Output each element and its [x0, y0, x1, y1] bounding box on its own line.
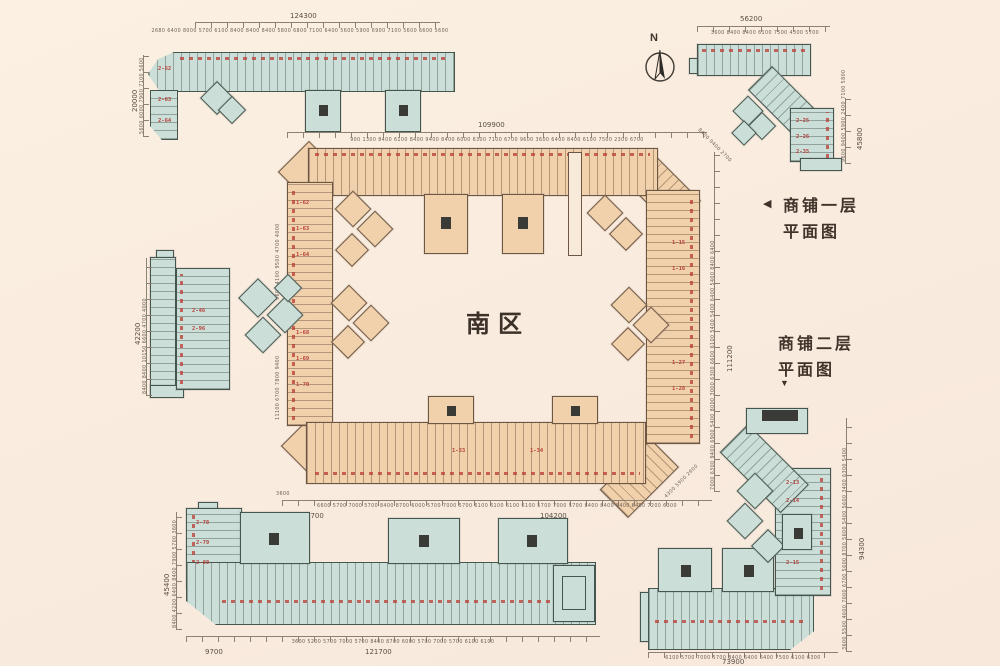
unit-label: 2-46 [192, 308, 205, 314]
dim-subs: 3600 5200 5700 7000 5700 8400 8700 6000 … [186, 640, 600, 645]
unit-label: 1-33 [452, 448, 465, 454]
dim-total: 42200 [134, 323, 142, 345]
unit-label: 2-64 [158, 118, 171, 124]
legend-floor1-arrow-icon: ◀ [763, 197, 771, 210]
zone-label: 南区 [466, 304, 530, 339]
unit-label: 1-62 [296, 200, 309, 206]
dim-total: 20000 [131, 90, 139, 112]
unit-label: 2-13 [786, 480, 799, 486]
dim-subs: 6600 5700 7000 5700 8400 8700 6000 5700 … [282, 504, 712, 509]
unit-label: 1-15 [672, 240, 685, 246]
dim-total: 111200 [726, 345, 734, 372]
legend-floor2-arrow-icon: ▼ [780, 378, 789, 388]
dim-subs: 900 1300 8400 6100 8400 9400 8400 6000 6… [287, 138, 707, 143]
unit-label: 2-78 [196, 520, 209, 526]
dim-subs: 8400 8400 10150 6600 4700 4000 [143, 298, 148, 394]
dim-total: 56200 [740, 15, 762, 23]
dim-part: 9700 [205, 648, 223, 656]
dim-subs: 11100 6700 7800 9400 [276, 356, 281, 420]
unit-label: 1-27 [672, 360, 685, 366]
unit-label: 2-62 [158, 66, 171, 72]
unit-label: 2-25 [796, 118, 809, 124]
unit-label: 2-14 [786, 498, 799, 504]
unit-label: 1-68 [296, 330, 309, 336]
unit-label: 1-64 [296, 252, 309, 258]
unit-label: 1-34 [530, 448, 543, 454]
dim-total: 124300 [290, 12, 317, 20]
dim-total: 109900 [478, 121, 505, 129]
unit-label: 2-15 [786, 560, 799, 566]
dim-subs: 3600 8400 8400 6100 7500 4300 5700 [695, 31, 835, 36]
unit-label: 2-80 [196, 560, 209, 566]
unit-label: 1-63 [296, 226, 309, 232]
unit-label: 1-70 [296, 382, 309, 388]
dim-subs: 2680 6400 8000 5700 6100 8400 8400 8400 … [150, 29, 450, 34]
dim-total: 45800 [856, 128, 864, 150]
legend-floor2-line1: 商铺二层 [778, 330, 854, 354]
north-label: N [650, 32, 658, 44]
unit-label: 2-96 [192, 326, 205, 332]
unit-label: 2-26 [796, 134, 809, 140]
dim-subs: 8400 4200 6400 8400 7900 5700 3600 [173, 520, 178, 628]
legend-floor2-line2: 平面图 [778, 356, 835, 380]
unit-label: 2-79 [196, 540, 209, 546]
dim-subs: 3600 5500 4600 7000 6700 5600 8700 5600 … [843, 447, 848, 650]
dim-part: 3600 [276, 492, 290, 497]
legend-floor1-line2: 平面图 [783, 218, 840, 242]
unit-label: 2-35 [796, 149, 809, 155]
north-arrow-icon [642, 46, 678, 86]
unit-label: 1-16 [672, 266, 685, 272]
unit-label: 1-28 [672, 386, 685, 392]
dim-total: 94300 [858, 538, 866, 560]
dim-total: 73900 [722, 658, 744, 666]
dim-total: 121700 [365, 648, 392, 656]
dim-total: 45400 [163, 574, 171, 596]
dim-subs: 5600 6000 7900 7100 5600 [140, 57, 145, 134]
unit-label: 1-69 [296, 356, 309, 362]
unit-label: 2-63 [158, 97, 171, 103]
floorplan-canvas: N ◀ 商铺一层 平面图 商铺二层 平面图 ▼ 南区 2-62 2-63 2-6… [0, 0, 1000, 666]
legend-floor1-line1: 商铺一层 [783, 192, 859, 216]
dim-subs: 7000 6300 9400 6900 5400 8000 3000 6300 … [711, 240, 716, 490]
dim-subs: 9600 9400 5900 2400 7100 5800 [842, 70, 847, 162]
